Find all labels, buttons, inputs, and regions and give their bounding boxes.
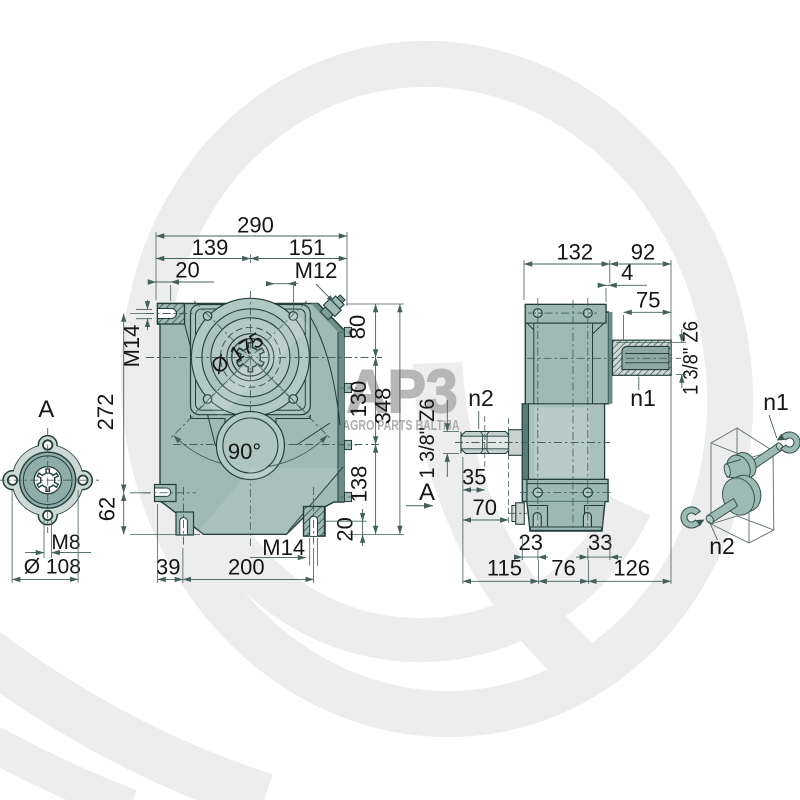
svg-text:290: 290 xyxy=(237,213,274,238)
svg-text:1 3/8" Z6: 1 3/8" Z6 xyxy=(416,399,439,479)
svg-text:80: 80 xyxy=(345,315,370,339)
svg-text:M12: M12 xyxy=(295,258,338,283)
svg-text:115: 115 xyxy=(487,556,522,581)
svg-text:M8: M8 xyxy=(51,531,80,554)
svg-text:62: 62 xyxy=(95,497,120,521)
svg-text:132: 132 xyxy=(556,240,593,265)
svg-text:76: 76 xyxy=(551,556,575,581)
svg-text:1 3/8" Z6: 1 3/8" Z6 xyxy=(680,321,703,395)
svg-text:75: 75 xyxy=(636,288,660,313)
svg-text:138: 138 xyxy=(347,466,372,503)
svg-text:20: 20 xyxy=(175,258,199,283)
svg-text:70: 70 xyxy=(473,495,497,520)
svg-text:130: 130 xyxy=(346,381,371,418)
svg-text:272: 272 xyxy=(93,394,118,431)
svg-text:n2: n2 xyxy=(468,385,494,411)
svg-text:35: 35 xyxy=(462,465,486,490)
svg-text:151: 151 xyxy=(289,235,326,260)
svg-text:Ø 108: Ø 108 xyxy=(24,556,81,579)
svg-text:A: A xyxy=(38,396,54,423)
svg-text:39: 39 xyxy=(156,555,180,580)
svg-text:4: 4 xyxy=(621,260,633,285)
svg-text:n2: n2 xyxy=(709,533,735,559)
svg-text:A: A xyxy=(419,479,435,506)
svg-text:n1: n1 xyxy=(630,385,656,411)
svg-text:200: 200 xyxy=(228,555,265,580)
svg-text:M14: M14 xyxy=(262,535,305,560)
svg-text:348: 348 xyxy=(370,388,395,425)
svg-text:33: 33 xyxy=(588,530,612,555)
svg-text:139: 139 xyxy=(192,235,229,260)
svg-text:126: 126 xyxy=(613,556,650,581)
svg-text:90°: 90° xyxy=(228,439,261,464)
svg-text:n1: n1 xyxy=(763,389,789,415)
svg-text:M14: M14 xyxy=(119,325,144,368)
svg-text:92: 92 xyxy=(631,240,655,265)
svg-text:AGRO PARTS BALTIJA: AGRO PARTS BALTIJA xyxy=(343,418,460,434)
